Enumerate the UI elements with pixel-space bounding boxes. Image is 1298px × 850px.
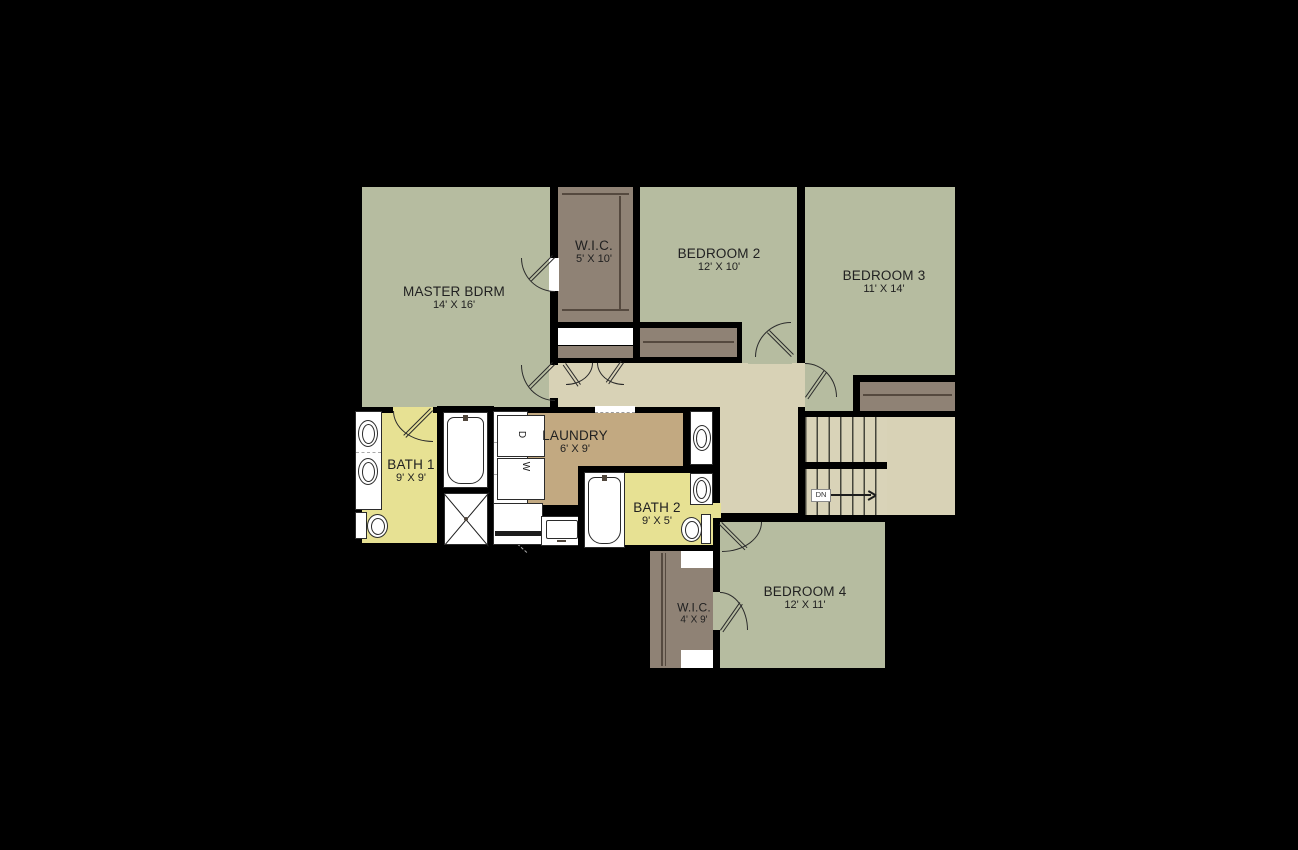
wic4-shelf-notch-top: [681, 551, 713, 568]
room-name: BATH 1: [387, 457, 434, 472]
label-wic-master: W.I.C. 5' X 10': [575, 238, 613, 266]
bath1-vanity-seam: [356, 452, 381, 453]
linen-closet-opening: [558, 328, 633, 345]
room-dims: 6' X 9': [542, 443, 608, 456]
utility-sink-drain: [557, 540, 566, 542]
room-name: W.I.C.: [677, 602, 711, 615]
bath1-tub-basin: [447, 417, 484, 484]
wic4-shelf-notch-bottom: [681, 650, 713, 668]
doorway-hall-to-bedroom2: [748, 357, 792, 364]
label-bath1: BATH 1 9' X 9': [387, 457, 434, 485]
bath2-sink-1: [693, 425, 711, 451]
room-dims: 12' X 10': [678, 261, 761, 274]
room-name: BEDROOM 4: [764, 584, 847, 599]
bath1-vanity: [355, 411, 382, 510]
room-name: BEDROOM 2: [678, 246, 761, 261]
room-name: BATH 2: [633, 500, 680, 515]
room-dims: 12' X 11': [764, 599, 847, 612]
stairs-upper-flight: [805, 417, 887, 462]
laundry-cabinet-edge: [495, 531, 542, 536]
bath1-shower: [444, 493, 488, 545]
bath2-sink-2: [693, 477, 711, 503]
bath1-tub: [443, 412, 488, 488]
wic4-rod-line2: [665, 553, 666, 666]
hallway-column: [720, 407, 798, 513]
bedroom3-closet-rod: [863, 394, 952, 396]
room-dims: 11' X 14': [843, 283, 926, 296]
bath2-toilet-bowl: [681, 517, 702, 542]
room-dims: 9' X 5': [633, 515, 680, 528]
stairs-dn-label: DN: [811, 489, 831, 502]
bath1-tub-faucet: [463, 415, 468, 421]
utility-sink-basin: [546, 520, 578, 539]
bath2-vanity-upper: [690, 411, 713, 465]
room-dims: 4' X 9': [677, 615, 711, 627]
room-dims: 5' X 10': [575, 253, 613, 266]
wic4-rod: [661, 553, 663, 666]
label-bedroom2: BEDROOM 2 12' X 10': [678, 246, 761, 274]
doorway-bath2: [712, 503, 721, 518]
washer-label: W: [520, 462, 531, 471]
label-bedroom3: BEDROOM 3 11' X 14': [843, 268, 926, 296]
room-dims: 9' X 9': [387, 472, 434, 485]
bath1-toilet-bowl: [367, 514, 388, 538]
doorway-laundry: [595, 406, 635, 413]
label-laundry: LAUNDRY 6' X 9': [542, 428, 608, 456]
room-name: W.I.C.: [575, 238, 613, 253]
linen-closet-shelf: [558, 346, 633, 358]
bedroom2-closet-rod: [643, 341, 734, 343]
bath2-toilet-tank: [701, 514, 711, 544]
room-name: LAUNDRY: [542, 428, 608, 443]
label-master-bedroom: MASTER BDRM 14' X 16': [403, 284, 505, 312]
bath1-toilet-tank: [355, 512, 367, 539]
label-bath2: BATH 2 9' X 5': [633, 500, 680, 528]
label-bedroom4: BEDROOM 4 12' X 11': [764, 584, 847, 612]
bath1-sink-1: [358, 420, 378, 447]
wic-rod-right: [619, 196, 621, 309]
bedroom3-closet: [860, 382, 955, 411]
label-wic4: W.I.C. 4' X 9': [677, 602, 711, 627]
laundry-counter-bottom: [493, 503, 543, 545]
bath1-sink-2: [358, 458, 378, 485]
room-name: BEDROOM 3: [843, 268, 926, 283]
shower-drain: [464, 517, 468, 521]
wic-shelf-line-bottom: [562, 309, 629, 311]
room-dims: 14' X 16': [403, 299, 505, 312]
hallway-upper: [558, 363, 805, 407]
floor-plan: D W DN: [0, 0, 1298, 850]
bath2-tub-faucet: [602, 475, 607, 481]
room-name: MASTER BDRM: [403, 284, 505, 299]
bath2-tub-basin: [588, 477, 621, 544]
bath2-vanity-lower: [690, 473, 713, 505]
stairs-landing: [887, 417, 955, 515]
stairs-dn-arrow-line: [831, 494, 871, 496]
bath2-tub: [584, 472, 625, 548]
laundry-utility-sink: [541, 516, 583, 546]
dryer-label: D: [516, 431, 527, 438]
